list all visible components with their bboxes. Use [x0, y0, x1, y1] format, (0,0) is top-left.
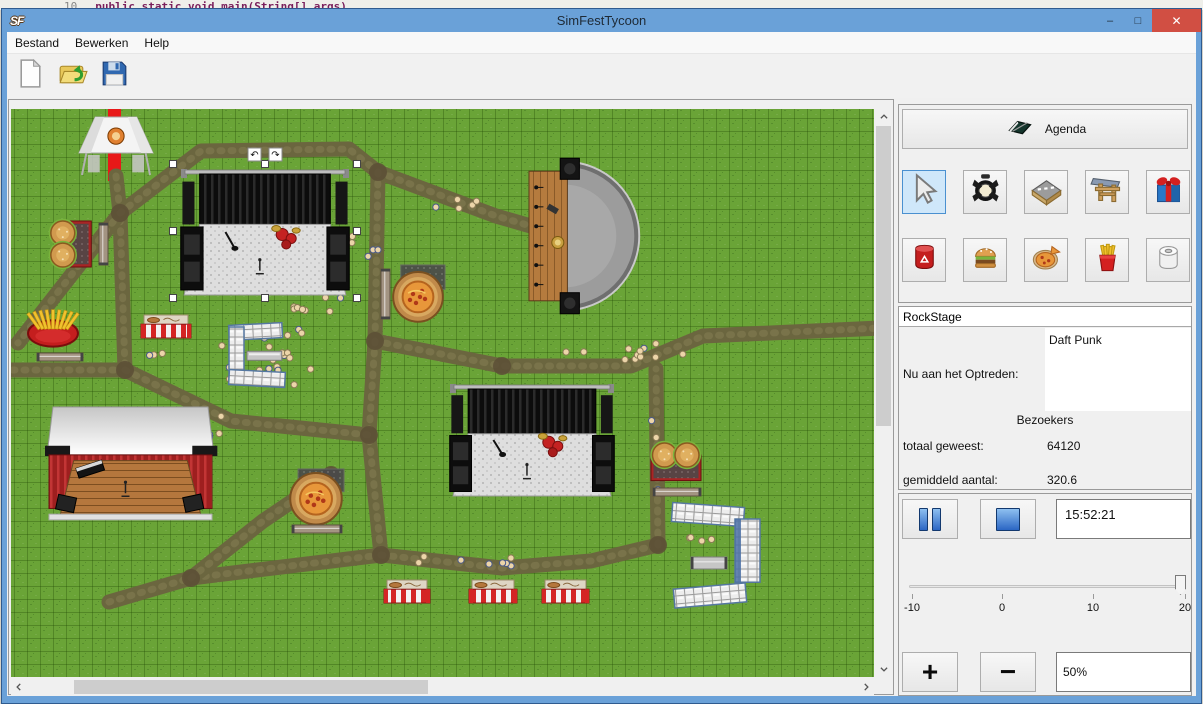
slider-tick	[1185, 594, 1186, 599]
horizontal-scroll-thumb[interactable]	[74, 680, 428, 694]
slider-tick-label: 20	[1179, 602, 1191, 614]
window-controls: – □ ✕	[1096, 9, 1201, 32]
slider-tick	[1002, 594, 1003, 599]
stage-info-panel: Nu aan het Optreden: Daft Punk Bezoekers…	[898, 306, 1192, 490]
festival-map[interactable]: ↶↷	[11, 109, 874, 677]
stop-button[interactable]	[980, 499, 1036, 539]
tool-road-button[interactable]	[1024, 170, 1068, 214]
zoom-in-button[interactable]: +	[902, 652, 958, 692]
total-visitors-label: totaal geweest:	[903, 439, 984, 453]
total-visitors-value: 64120	[1047, 439, 1080, 453]
speed-slider: -1001020	[899, 564, 1193, 624]
menu-bar: BestandBewerkenHelp	[7, 32, 1196, 54]
pizza-icon	[1029, 240, 1064, 280]
map-object-burger-stand[interactable]	[50, 220, 91, 268]
map-object-tent-stage[interactable]	[45, 407, 217, 520]
scroll-down-icon[interactable]	[875, 661, 892, 677]
svg-text:↶: ↶	[250, 150, 258, 161]
tool-toilet-paper-button[interactable]	[1146, 238, 1190, 282]
now-performing-box: Daft Punk	[1045, 328, 1191, 411]
map-object-fries-stand[interactable]	[27, 310, 79, 347]
slider-tick	[1093, 594, 1094, 599]
map-object-bench-h[interactable]	[37, 353, 83, 361]
map-object-dark-stage[interactable]	[181, 169, 350, 295]
zoom-out-button[interactable]: −	[980, 652, 1036, 692]
average-visitors-label: gemiddeld aantal:	[903, 473, 998, 487]
vertical-scroll-thumb[interactable]	[876, 126, 891, 426]
client-area: ↶↷ Agenda Nu aan het Optreden:	[7, 98, 1196, 696]
horizontal-scrollbar[interactable]	[11, 679, 874, 695]
map-object-striped-stall[interactable]	[542, 580, 589, 603]
map-object-bench-v[interactable]	[381, 269, 390, 319]
menu-bestand[interactable]: Bestand	[7, 33, 67, 53]
scroll-up-icon[interactable]	[875, 109, 892, 125]
agenda-label: Agenda	[1045, 122, 1086, 136]
minimize-button[interactable]: –	[1096, 9, 1124, 32]
menu-bewerken[interactable]: Bewerken	[67, 33, 136, 53]
maximize-button[interactable]: □	[1124, 9, 1152, 32]
slider-tick-label: 10	[1087, 602, 1099, 614]
open-folder-icon	[56, 57, 89, 95]
now-performing-label: Nu aan het Optreden:	[903, 367, 1018, 381]
burger-icon	[968, 240, 1003, 280]
pause-icon	[919, 508, 928, 531]
playback-panel: 15:52:21 -1001020 + −	[898, 493, 1192, 696]
slider-track[interactable]	[909, 585, 1185, 588]
map-object-dark-stage[interactable]	[450, 384, 615, 496]
menu-help[interactable]: Help	[136, 33, 177, 53]
map-object-barrier-c[interactable]	[229, 323, 286, 388]
new-document-button[interactable]	[11, 57, 49, 95]
tool-burger-button[interactable]	[963, 238, 1007, 282]
map-object-striped-stall[interactable]	[384, 580, 430, 603]
visitors-header: Bezoekers	[899, 413, 1191, 427]
window-title: SimFestTycoon	[2, 13, 1201, 28]
gift-icon	[1151, 172, 1186, 212]
title-bar[interactable]: SF SimFestTycoon – □ ✕	[2, 9, 1201, 32]
tools-panel: Agenda	[898, 104, 1192, 303]
stop-icon	[996, 508, 1020, 531]
scroll-left-icon[interactable]	[11, 679, 27, 695]
tool-spotlight-button[interactable]	[963, 170, 1007, 214]
slider-tick-label: -10	[904, 602, 920, 614]
svg-text:↷: ↷	[271, 150, 280, 161]
tool-entrance-gate-button[interactable]	[1085, 170, 1129, 214]
entrance-gate-icon	[1090, 172, 1125, 212]
open-folder-button[interactable]	[53, 57, 91, 95]
map-object-bench-h[interactable]	[691, 557, 727, 569]
toolbar	[7, 54, 1196, 98]
map-object-pizza-stand[interactable]	[290, 469, 344, 524]
map-object-burger-stand[interactable]	[651, 442, 701, 481]
average-visitors-value: 320.6	[1047, 473, 1077, 487]
agenda-book-icon	[1004, 115, 1036, 144]
map-viewport: ↶↷	[8, 99, 894, 695]
map-object-bench-v[interactable]	[99, 223, 108, 265]
app-window: SF SimFestTycoon – □ ✕ BestandBewerkenHe…	[1, 8, 1202, 704]
slider-thumb[interactable]	[1175, 575, 1186, 595]
vertical-scrollbar[interactable]	[875, 109, 892, 677]
fries-icon	[1090, 240, 1125, 280]
slider-tick	[912, 594, 913, 599]
tool-fries-button[interactable]	[1085, 238, 1129, 282]
map-object-bench-h[interactable]	[292, 525, 342, 533]
tool-gift-button[interactable]	[1146, 170, 1190, 214]
pause-button[interactable]	[902, 499, 958, 539]
slider-tick-label: 0	[999, 602, 1005, 614]
save-floppy-icon	[98, 57, 131, 95]
map-object-pizza-stand[interactable]	[393, 265, 445, 322]
tool-select-cursor-button[interactable]	[902, 170, 946, 214]
close-button[interactable]: ✕	[1152, 9, 1201, 32]
stage-name-field[interactable]	[899, 307, 1191, 327]
select-cursor-icon	[907, 172, 942, 212]
map-object-striped-stall[interactable]	[141, 315, 191, 338]
save-floppy-button[interactable]	[95, 57, 133, 95]
new-document-icon	[14, 57, 47, 95]
clock-display: 15:52:21	[1056, 499, 1191, 539]
trash-can-icon	[907, 240, 942, 280]
zoom-level-field[interactable]	[1056, 652, 1191, 692]
tool-pizza-button[interactable]	[1024, 238, 1068, 282]
agenda-button[interactable]: Agenda	[902, 109, 1188, 149]
road-icon	[1029, 172, 1064, 212]
spotlight-icon	[968, 172, 1003, 212]
now-performing-value: Daft Punk	[1045, 328, 1191, 347]
map-object-striped-stall[interactable]	[469, 580, 517, 603]
toilet-paper-icon	[1151, 240, 1186, 280]
map-object-bench-h[interactable]	[653, 488, 701, 496]
tool-trash-can-button[interactable]	[902, 238, 946, 282]
scroll-right-icon[interactable]	[858, 679, 874, 695]
